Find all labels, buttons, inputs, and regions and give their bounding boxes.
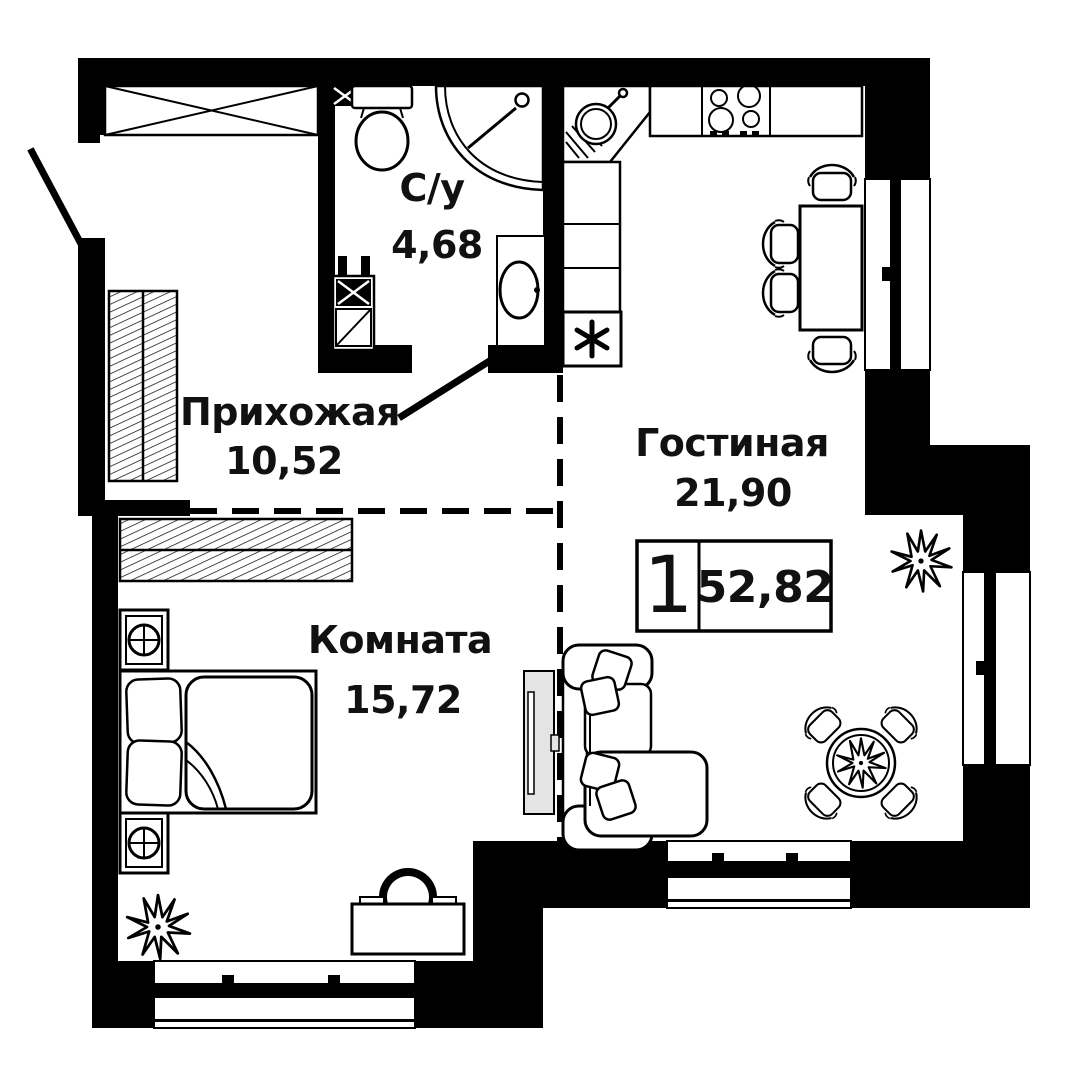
- plant-icon: [892, 531, 952, 592]
- tv-panel-icon: [524, 671, 559, 814]
- nightstand-icon: [120, 813, 168, 873]
- window-kitchen-right: [865, 179, 930, 370]
- room-area-bedroom: 15,72: [344, 678, 462, 722]
- room-area-hallway: 10,52: [225, 439, 343, 483]
- desk-icon: [352, 872, 464, 954]
- window-bedroom-bottom: [154, 961, 415, 1028]
- room-area-bathroom: 4,68: [391, 223, 483, 267]
- bath-sink-icon: [497, 236, 545, 346]
- badge-total-area: 52,82: [697, 562, 834, 613]
- dining-table-icon: [763, 165, 862, 372]
- nightstand-icon: [120, 610, 168, 670]
- fridge-icon: [563, 312, 621, 366]
- utility-riser-icon: [333, 256, 374, 350]
- room-label-hallway: Прихожая: [180, 390, 400, 434]
- kitchen-corner-sink-icon: [563, 86, 650, 162]
- bathroom-door-icon: [402, 362, 488, 416]
- toilet-icon: [352, 86, 412, 170]
- plant-icon: [127, 895, 190, 959]
- apartment-badge: 1 52,82: [637, 541, 833, 631]
- room-label-living: Гостиная: [635, 421, 829, 465]
- bedroom-wardrobe-icon: [120, 519, 352, 581]
- entrance-door-icon: [32, 152, 80, 242]
- hallway-wardrobe-icon: [109, 291, 177, 481]
- badge-room-count: 1: [644, 541, 693, 631]
- window-living-right: [963, 572, 1030, 765]
- room-label-bedroom: Комната: [308, 618, 492, 662]
- sofa-icon: [563, 645, 707, 850]
- entrance-closet: [105, 86, 318, 135]
- window-living-bottom: [667, 841, 851, 908]
- room-area-living: 21,90: [674, 471, 792, 515]
- bed-icon: [120, 671, 316, 813]
- floor-plan: Прихожая 10,52 С/у 4,68 Гостиная 21,90 К…: [0, 0, 1080, 1080]
- round-table-icon: [798, 700, 924, 826]
- room-label-bathroom: С/у: [399, 166, 465, 210]
